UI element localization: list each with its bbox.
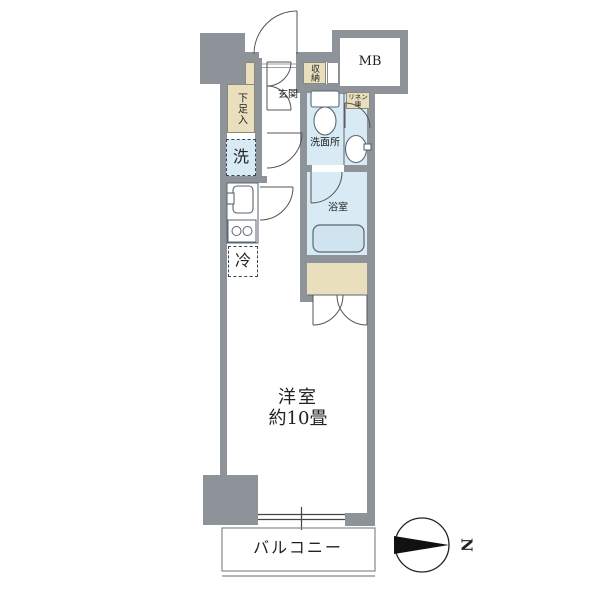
pipe-space — [327, 62, 339, 84]
meter-box-label: MB — [359, 55, 382, 69]
compass — [394, 518, 449, 572]
compass-circle — [395, 518, 449, 572]
main-room-label-1: 洋室 — [278, 388, 318, 408]
kitchen-sink — [233, 186, 253, 213]
washer-label: 洗 — [233, 148, 249, 166]
shoe-box-tab — [245, 62, 255, 85]
bathroom-floor — [307, 172, 367, 255]
storage-label: 収納 — [308, 64, 321, 82]
hall-door-swing — [267, 133, 302, 168]
stove — [228, 220, 256, 242]
floor-plan: リネン 庫 — [0, 0, 600, 600]
pillar-bottom-left — [203, 475, 258, 525]
kitchen-counter — [227, 183, 258, 243]
shoe-box-doors — [267, 62, 291, 110]
storage-left-stub — [296, 62, 303, 84]
closet-bottom-stub — [300, 295, 313, 302]
entrance-door-swing — [254, 11, 297, 54]
balcony-window — [258, 507, 345, 530]
bathroom-label: 浴室 — [328, 203, 348, 214]
bath-bottom-wall — [300, 255, 375, 263]
bath-top-wall-left — [300, 165, 312, 172]
balcony-label: バルコニー — [253, 539, 343, 557]
linen-cabinet: リネン 庫 — [346, 92, 370, 109]
genkan-left-wall — [255, 58, 262, 183]
main-room-label-2: 約10畳 — [269, 409, 328, 429]
kitchen-faucet — [227, 193, 234, 204]
closet-area — [307, 263, 367, 295]
entrance-step-lines — [262, 64, 296, 68]
kitchen-top-wall — [220, 176, 267, 183]
compass-needle-icon — [394, 536, 449, 554]
pillar-top-left — [200, 33, 245, 84]
shoe-box-label: 下足入 — [234, 93, 249, 126]
washroom-label: 洗面所 — [310, 138, 340, 149]
corridor-door-swing — [260, 187, 293, 220]
bath-top-wall-right — [344, 165, 372, 172]
compass-north-label: N — [458, 538, 475, 552]
entrance-label: 玄関 — [278, 90, 298, 101]
washroom-left-wall — [300, 84, 307, 302]
fridge-label: 冷 — [235, 252, 251, 270]
closet-double-doors — [307, 295, 367, 325]
linen-label-2: 庫 — [355, 101, 362, 108]
right-wall — [367, 94, 375, 526]
bottom-wall-right — [345, 513, 375, 526]
